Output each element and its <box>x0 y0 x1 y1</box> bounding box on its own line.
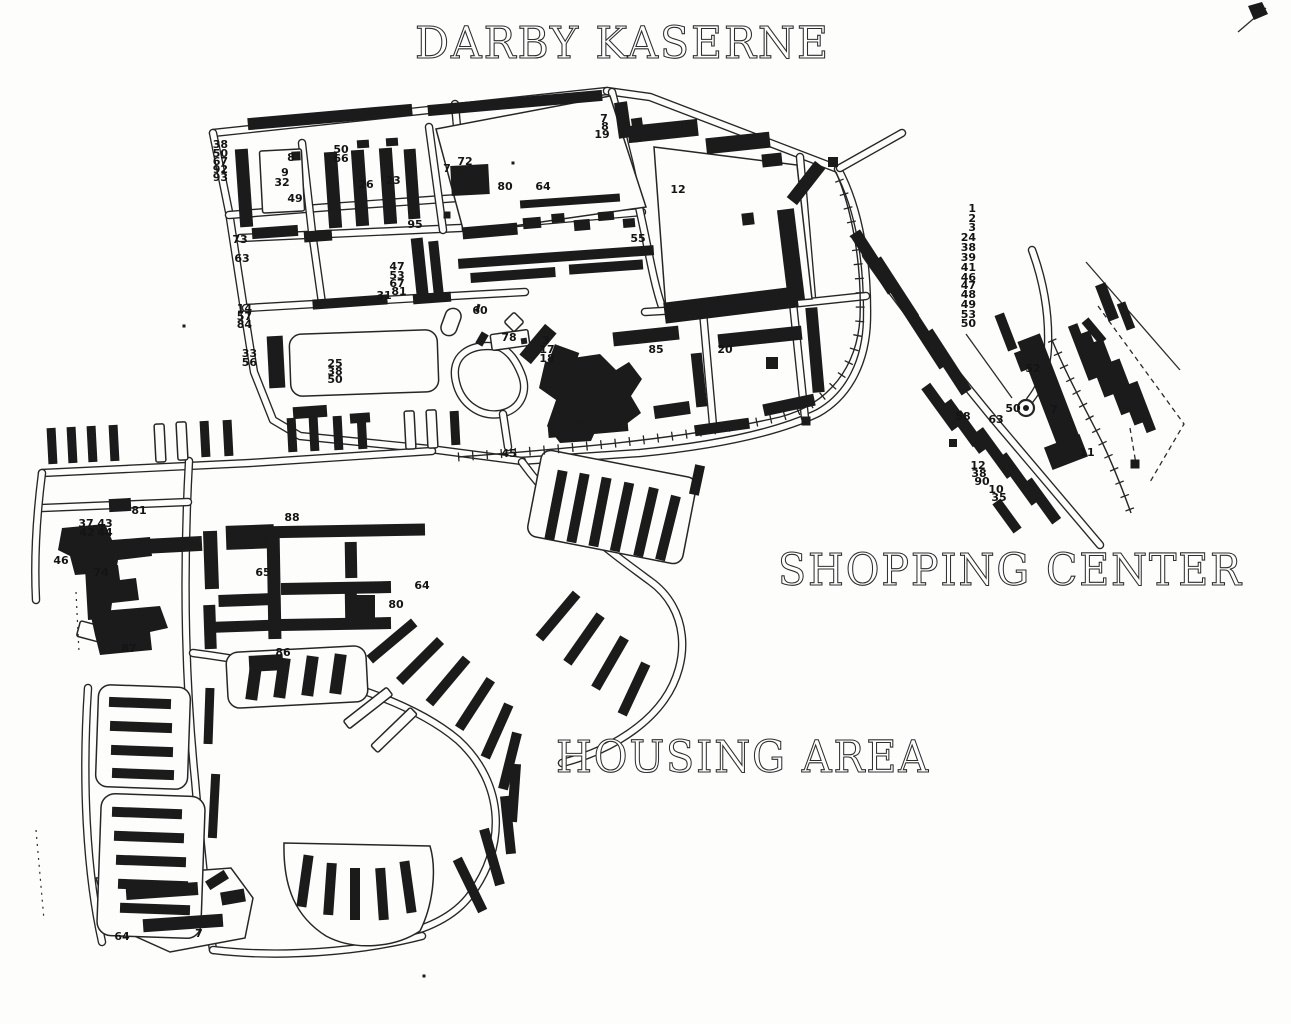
building-number-label: 32 <box>274 176 289 189</box>
building-number-label: 50 <box>1005 402 1021 415</box>
building-number-label: 63 <box>988 413 1003 426</box>
building-number-label: 64 <box>535 180 551 193</box>
building-number-label: 88 <box>284 511 299 524</box>
building-number-label: 18 <box>539 352 554 365</box>
building-number-label: 12 <box>670 183 685 196</box>
building-number-label: 11 <box>1079 446 1094 459</box>
building-number-label: 50 <box>961 317 977 330</box>
region-label-housing-area: HOUSING AREA <box>556 732 930 783</box>
building-number-label: 8 <box>287 151 295 164</box>
building-number-label: 80 <box>497 180 513 193</box>
building-number-label: 35 <box>991 491 1006 504</box>
building-number-label: 95 <box>407 218 422 231</box>
building-number-label: 23 <box>385 174 400 187</box>
map-title: DARBY KASERNE <box>415 18 830 69</box>
building-number-label: 44 <box>97 526 113 539</box>
building-number-label: 85 <box>648 343 663 356</box>
building-number-label: 7 <box>443 162 451 175</box>
building-number-label: 73 <box>232 233 247 246</box>
scanned-base-map: DARBY KASERNE SHOPPING CENTER HOUSING AR… <box>0 0 1291 1024</box>
building-number-label: 78 <box>501 331 516 344</box>
building-number-label: 74 <box>93 566 109 579</box>
region-label-shopping-center: SHOPPING CENTER <box>778 545 1243 596</box>
building-number-label: 42 <box>79 526 94 539</box>
building-number-label: 7 <box>1050 403 1058 416</box>
building-number-label: 65 <box>255 566 270 579</box>
building-number-label: 60 <box>472 304 488 317</box>
building-number-label: 58 <box>955 410 970 423</box>
building-number-label: 80 <box>388 598 404 611</box>
building-number-label: 50 <box>327 373 343 386</box>
circled-dot-marker-icon <box>1023 405 1029 411</box>
building-number-label: 19 <box>594 128 609 141</box>
building-number-label: 64 <box>114 930 130 943</box>
building-number-label: 64 <box>414 579 430 592</box>
building-number-label: 66 <box>333 152 349 165</box>
building-number-label: 52 <box>1025 362 1040 375</box>
building-number-label: 63 <box>234 252 249 265</box>
building-number-label: 45 <box>501 447 516 460</box>
base-map-canvas: DARBY KASERNE SHOPPING CENTER HOUSING AR… <box>0 0 1291 1024</box>
building-number-label: 31 <box>376 289 391 302</box>
building-number-label: 20 <box>717 343 733 356</box>
building-number-label: 72 <box>457 155 472 168</box>
building-number-label: 46 <box>53 554 69 567</box>
building-number-label: 55 <box>630 232 645 245</box>
building-number-label: 56 <box>242 356 258 369</box>
building-number-label: 49 <box>287 192 302 205</box>
building-number-label: 81 <box>391 285 406 298</box>
building-number-label: 84 <box>237 318 253 331</box>
building-number-label: 87 <box>121 642 136 655</box>
building-number-label: 93 <box>213 171 228 184</box>
building-number-label: 81 <box>131 504 146 517</box>
building-number-label: 26 <box>358 178 374 191</box>
building-number-label: 7 <box>195 927 203 940</box>
building-number-label: 86 <box>275 646 291 659</box>
